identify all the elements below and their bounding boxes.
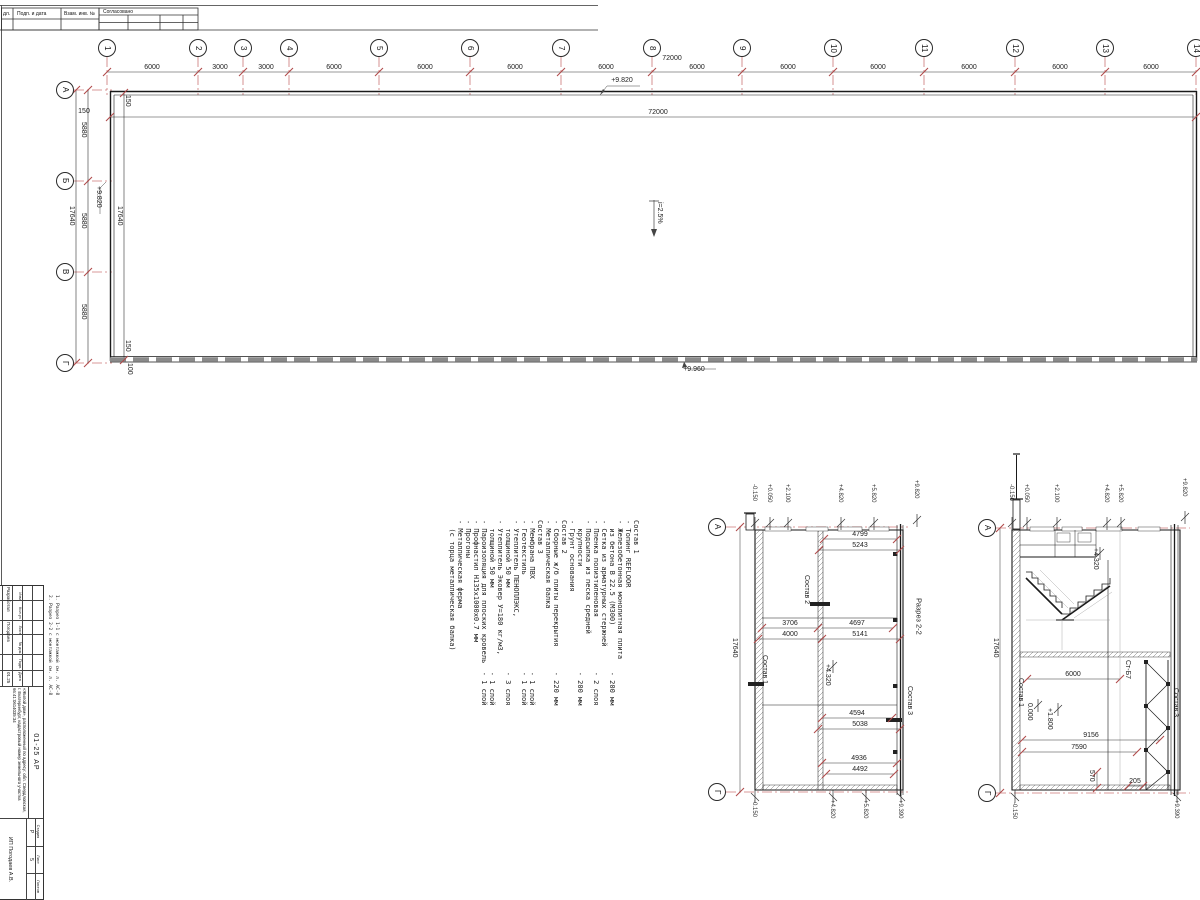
dimension-text: 4936 [851, 755, 867, 762]
annotation-text: 570 [1088, 770, 1095, 782]
titleblock-name: Погодаев [6, 622, 11, 642]
grid-bubble: 9 [733, 39, 751, 57]
titleblock-header-cell: Изм [18, 586, 22, 606]
grid-bubble: 3 [234, 39, 252, 57]
note-line: - Геотекстиль - 1 слой [520, 520, 528, 705]
annotation-text: Состав 1 [761, 655, 768, 684]
annotation-text: 0.000 [1026, 703, 1033, 721]
grid-bubble: 5 [370, 39, 388, 57]
dimension-text: 4799 [852, 531, 868, 538]
elevation-flag: +4.820 [829, 800, 835, 819]
note-line: - Подсыпка из песка средней [584, 520, 592, 705]
titleblock-date: 01.25 [6, 672, 11, 683]
grid-bubble: 13 [1096, 39, 1114, 57]
dimension-text: 6000 [326, 64, 342, 71]
grid-bubble: 6 [461, 39, 479, 57]
annotation-text: 17640 [992, 638, 999, 657]
dimension-text: 205 [1129, 778, 1141, 785]
dimension-text: 6000 [1052, 64, 1068, 71]
elevation-flag: +4.820 [837, 484, 843, 503]
grid-bubble: 12 [1006, 39, 1024, 57]
grid-bubble: 1 [98, 39, 116, 57]
dimension-text: 72000 [662, 55, 681, 62]
sheet-label: Лист [37, 846, 42, 873]
dimension-text: 3706 [782, 620, 798, 627]
annotation-text: Состав 1 [1017, 678, 1024, 707]
dimension-text: 5141 [852, 631, 868, 638]
dimension-text: 6000 [1065, 671, 1081, 678]
titleblock-header-row: ИзмКол.учЛист№ док.Подп.Дата [18, 586, 22, 686]
titleblock-header-cell: № док. [18, 640, 22, 656]
note-line: - Металлическая балка [544, 520, 552, 705]
dimension-text: 5880 [80, 122, 87, 138]
annotation-text: 17640 [731, 638, 738, 657]
dimension-text: 6000 [417, 64, 433, 71]
note-line: - Утеплитель Эковер У=180 кг/м3, [496, 520, 504, 705]
sheet-value: 5 [28, 846, 34, 873]
dimension-text: 100 [126, 363, 133, 375]
grid-bubble: 2 [189, 39, 207, 57]
note-line: Состав 3 [536, 520, 544, 705]
elevation-flag: +5.820 [862, 800, 868, 819]
section-title: Разрез 2-2 [915, 598, 923, 635]
dimension-text: 6000 [507, 64, 523, 71]
note-line: - Топинг REFLOOR [624, 520, 632, 705]
reference-notes: 1. Разрез 1-1 с монтажкой см. л. АС-82. … [46, 595, 60, 695]
annotation-text: Состав 3 [1172, 688, 1179, 717]
titleblock-header-cell: Лист [18, 620, 22, 640]
note-line: (с торца металлическая балка) [448, 520, 456, 705]
sheets-label: Листов [37, 873, 42, 900]
titleblock-header-cell: Дата [18, 672, 22, 681]
dimension-text: 4594 [849, 710, 865, 717]
note-line: - Грунт основания [568, 520, 576, 705]
elevation-flag: +2.100 [784, 484, 790, 503]
titleblock-role: Разработал [6, 587, 11, 612]
annotation-text: +1.800 [1046, 708, 1053, 730]
grid-bubble: А [56, 81, 74, 99]
dimension-text: 4697 [849, 620, 865, 627]
dimension-text: 5038 [852, 721, 868, 728]
titleblock-header-cell: Кол.уч [18, 606, 22, 620]
grid-bubble: 4 [280, 39, 298, 57]
dimension-text: 5880 [80, 304, 87, 320]
elevation-flag: -0.150 [751, 484, 757, 501]
grid-bubble: В [56, 263, 74, 281]
grid-bubble: 7 [552, 39, 570, 57]
stage-value: Р [28, 818, 34, 845]
elevation-flag: -0.150 [1008, 484, 1014, 501]
titleblock-header-cell: Подп. [18, 656, 22, 672]
note-line: Состав 1 [632, 520, 640, 705]
annotation-text: Состав 3 [906, 686, 913, 715]
note-line: - Пароизоляция для плоских кровель - 1 с… [480, 520, 488, 705]
dimension-text: 9156 [1083, 732, 1099, 739]
annotation-text: +4.320 [824, 664, 831, 686]
dimension-text: 17640 [116, 206, 123, 225]
approved-label: Согласовано [103, 10, 133, 15]
dimension-text: 6000 [870, 64, 886, 71]
dimension-text: 6000 [144, 64, 160, 71]
note-line: - Мембрана ПВХ - 1 слой [528, 520, 536, 705]
note-line: толщиной 50 мм - 1 слой [488, 520, 496, 705]
dimension-text: 6000 [689, 64, 705, 71]
dimension-text: i=2.5% [656, 202, 663, 224]
elevation-flag: +5.820 [1117, 484, 1123, 503]
note-line: - Пленка полиэтиленовая - 2 слоя [592, 520, 600, 705]
dimension-text: 150 [78, 108, 90, 115]
dimension-text: +9.820 [611, 77, 633, 84]
dimension-text: 4492 [852, 766, 868, 773]
organization-name: ИП Погодаев А.В. [0, 818, 27, 900]
elevation-flag: +9.390 [897, 800, 903, 819]
note-line: 1. Разрез 1-1 с монтажкой см. л. АС-8 [53, 595, 60, 695]
elevation-flag: +9.820 [1181, 478, 1187, 497]
dimension-text: 3000 [258, 64, 274, 71]
elevation-flag: -0.150 [1011, 802, 1017, 819]
elevation-flag: +2.100 [1053, 484, 1059, 503]
grid-bubble: Г [708, 783, 726, 801]
note-line: 2. Разрез 2-2 с монтажкой см. л. АС-8 [46, 595, 53, 695]
frame-cell-label: дл. [3, 12, 10, 17]
grid-bubble: А [978, 519, 996, 537]
dimension-text: 6000 [961, 64, 977, 71]
note-line: - Сборные ж/б плиты перекрытия - 220 мм [552, 520, 560, 705]
drawing-sheet: дл. Подп. и дата Взам. инв. № Согласован… [0, 0, 1200, 900]
note-line: толщиной 50 мм - 3 слоя [504, 520, 512, 705]
frame-cell-label: Подп. и дата [17, 12, 46, 17]
dimension-text: 7590 [1071, 744, 1087, 751]
grid-bubble: Б [56, 172, 74, 190]
note-line: из бетона В 22.5 (М300) - 200 мм [608, 520, 616, 705]
note-line: Состав 2 [560, 520, 568, 705]
dimension-text: +9.960 [683, 366, 705, 373]
dimension-text: 6000 [1143, 64, 1159, 71]
note-line: - Прогоны [464, 520, 472, 705]
grid-bubble: А [708, 518, 726, 536]
drawing-linework [0, 0, 1200, 900]
composition-notes: Состав 1- Топинг REFLOOR- Железобетонная… [448, 520, 640, 705]
grid-bubble: 14 [1187, 39, 1200, 57]
dimension-text: 5880 [80, 213, 87, 229]
note-line: - Металлическая ферма [456, 520, 464, 705]
frame-cell-label: Взам. инв. № [64, 12, 95, 17]
project-description: «Жилой дом», расположенный по адресу: об… [0, 687, 28, 817]
annotation-text: Состав 2 [803, 575, 810, 604]
dimension-text: 3000 [212, 64, 228, 71]
note-line: - Утеплитель ПЕНОПЛЭКС, [512, 520, 520, 705]
document-code: 01-25 АР [30, 686, 42, 818]
grid-bubble: Г [978, 784, 996, 802]
elevation-flag: +9.390 [1173, 800, 1179, 819]
dimension-text: 150 [124, 340, 131, 352]
note-line: - Железобетонная монолитная плита [616, 520, 624, 705]
grid-bubble: 8 [643, 39, 661, 57]
dimension-text: 17640 [68, 206, 75, 225]
grid-bubble: 11 [915, 39, 933, 57]
note-line: - Сетка из арматурных стержней [600, 520, 608, 705]
dimension-text: 6000 [598, 64, 614, 71]
dimension-text: 4000 [782, 631, 798, 638]
dimension-text: 5243 [852, 542, 868, 549]
dimension-text: 72000 [648, 109, 667, 116]
elevation-flag: +0.050 [1023, 484, 1029, 503]
note-line: крупности - 200 мм [576, 520, 584, 705]
dimension-text: 6000 [780, 64, 796, 71]
annotation-text: +4.320 [1092, 548, 1099, 570]
elevation-flag: +9.820 [913, 480, 919, 499]
grid-bubble: 10 [824, 39, 842, 57]
elevation-flag: -0.150 [751, 800, 757, 817]
dimension-text: 150 [124, 95, 131, 107]
annotation-text: Ст-Б7 [1124, 660, 1131, 679]
note-line: - Профнастил Н135х1000х0.7 мм [472, 520, 480, 705]
elevation-flag: +5.820 [870, 484, 876, 503]
elevation-flag: +4.820 [1103, 484, 1109, 503]
title-block: ИзмКол.учЛист№ док.Подп.Дата Разработал … [0, 585, 44, 900]
dimension-text: +9.820 [95, 186, 102, 208]
elevation-flag: +0.050 [766, 484, 772, 503]
grid-bubble: Г [56, 354, 74, 372]
stage-label: Стадия [37, 818, 42, 845]
